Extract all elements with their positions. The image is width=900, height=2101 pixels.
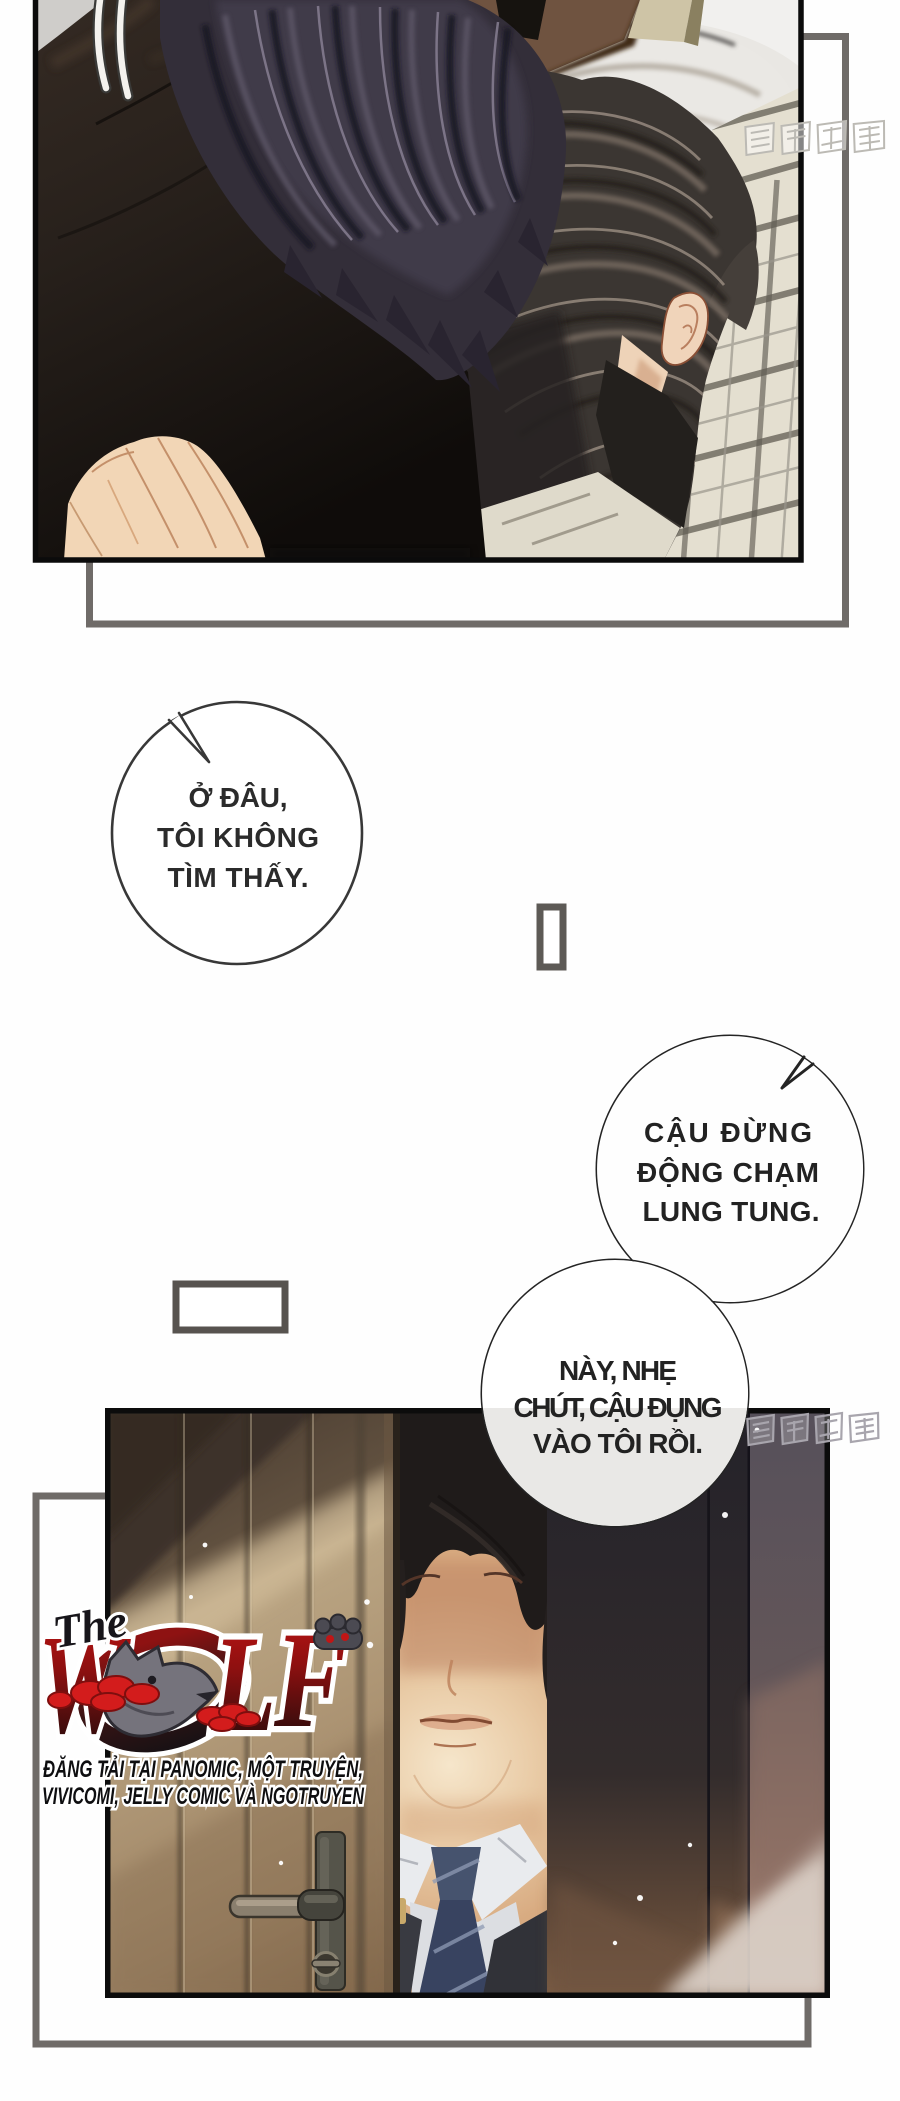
svg-text:CHÚT, CẬU ĐỤNG: CHÚT, CẬU ĐỤNG [514,1392,723,1423]
svg-text:VIVICOMI, JELLY COMIC VÀ NGOTR: VIVICOMI, JELLY COMIC VÀ NGOTRUYEN [42,1782,364,1810]
svg-text:CẬU ĐỪNG: CẬU ĐỪNG [644,1117,812,1148]
svg-text:NÀY, NHẸ: NÀY, NHẸ [559,1355,677,1386]
svg-text:ĐỘNG CHẠM: ĐỘNG CHẠM [637,1156,819,1188]
svg-text:Ở ĐÂU,: Ở ĐÂU, [189,781,288,813]
svg-text:ĐĂNG TẢI TẠI PANOMIC, MỘT TRUY: ĐĂNG TẢI TẠI PANOMIC, MỘT TRUYỆN, [43,1755,363,1783]
svg-text:TÌM THẤY.: TÌM THẤY. [168,862,309,893]
svg-text:LUNG TUNG.: LUNG TUNG. [643,1196,820,1227]
svg-text:L: L [211,1607,276,1760]
svg-text:VÀO TÔI RỒI.: VÀO TÔI RỒI. [533,1427,703,1459]
svg-text:TÔI KHÔNG: TÔI KHÔNG [157,821,319,853]
